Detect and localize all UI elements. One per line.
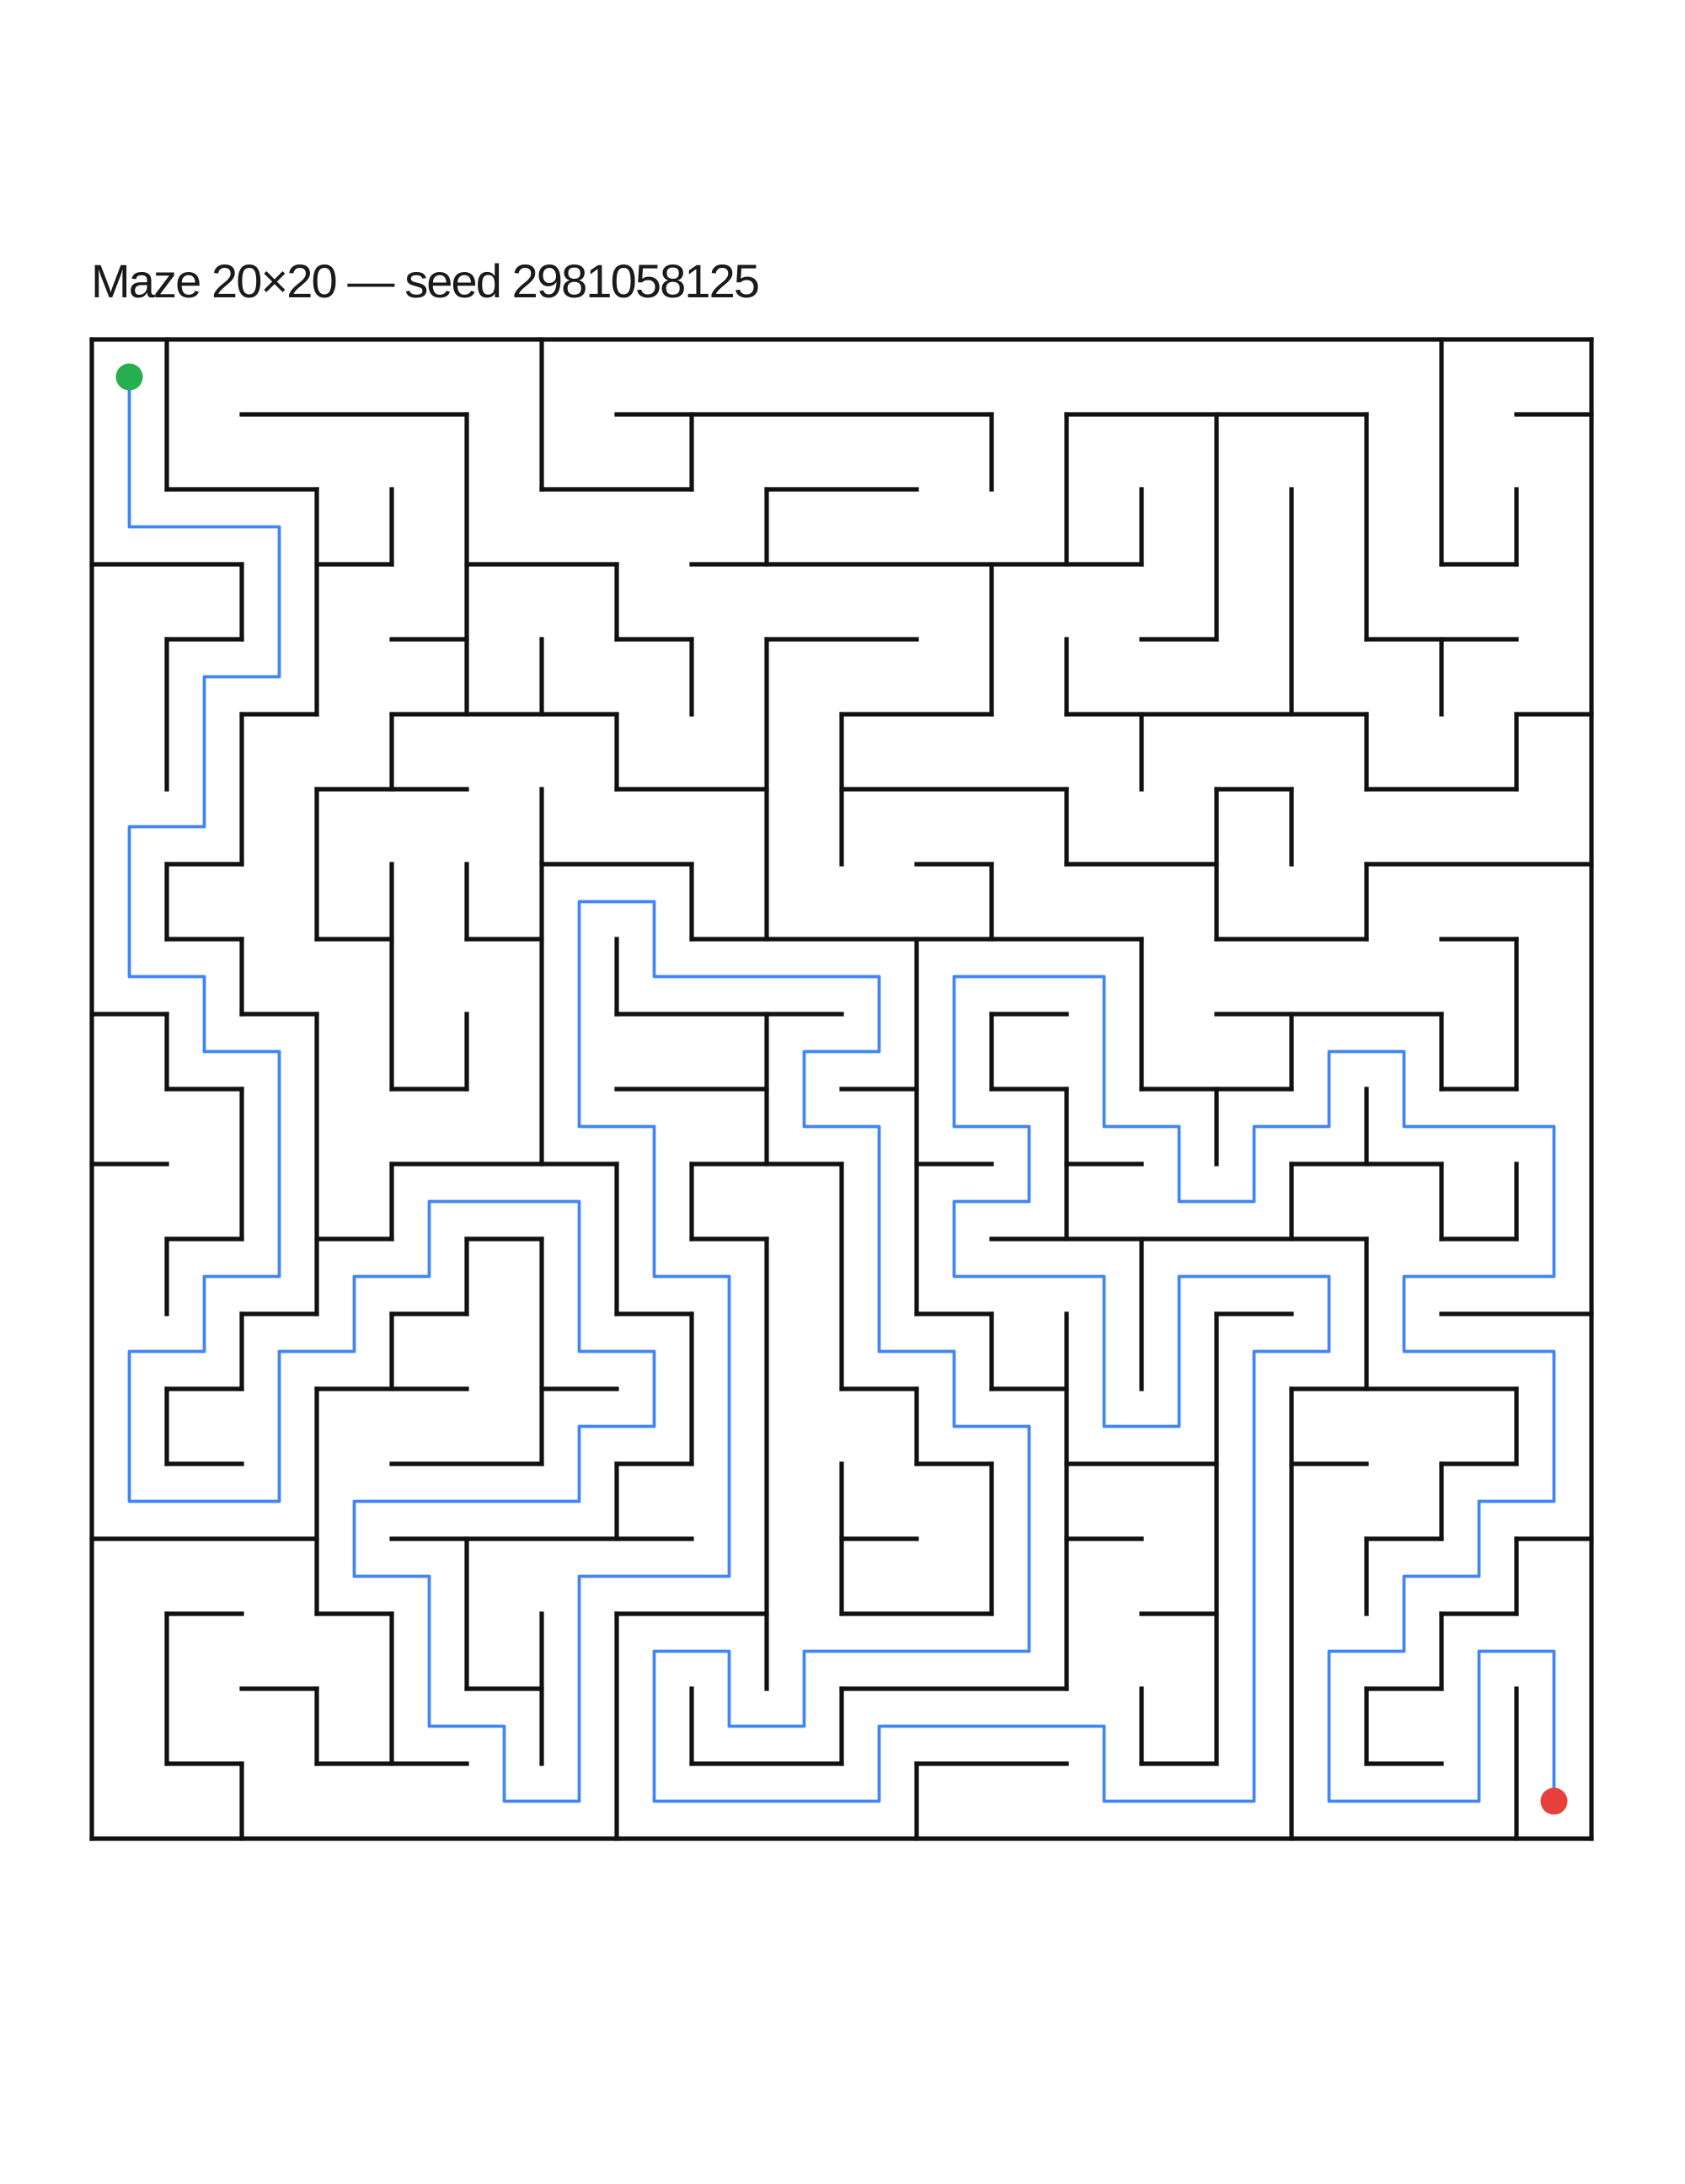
svg-text:Maze 20×20 — seed 2981058125: Maze 20×20 — seed 2981058125 xyxy=(91,254,758,307)
